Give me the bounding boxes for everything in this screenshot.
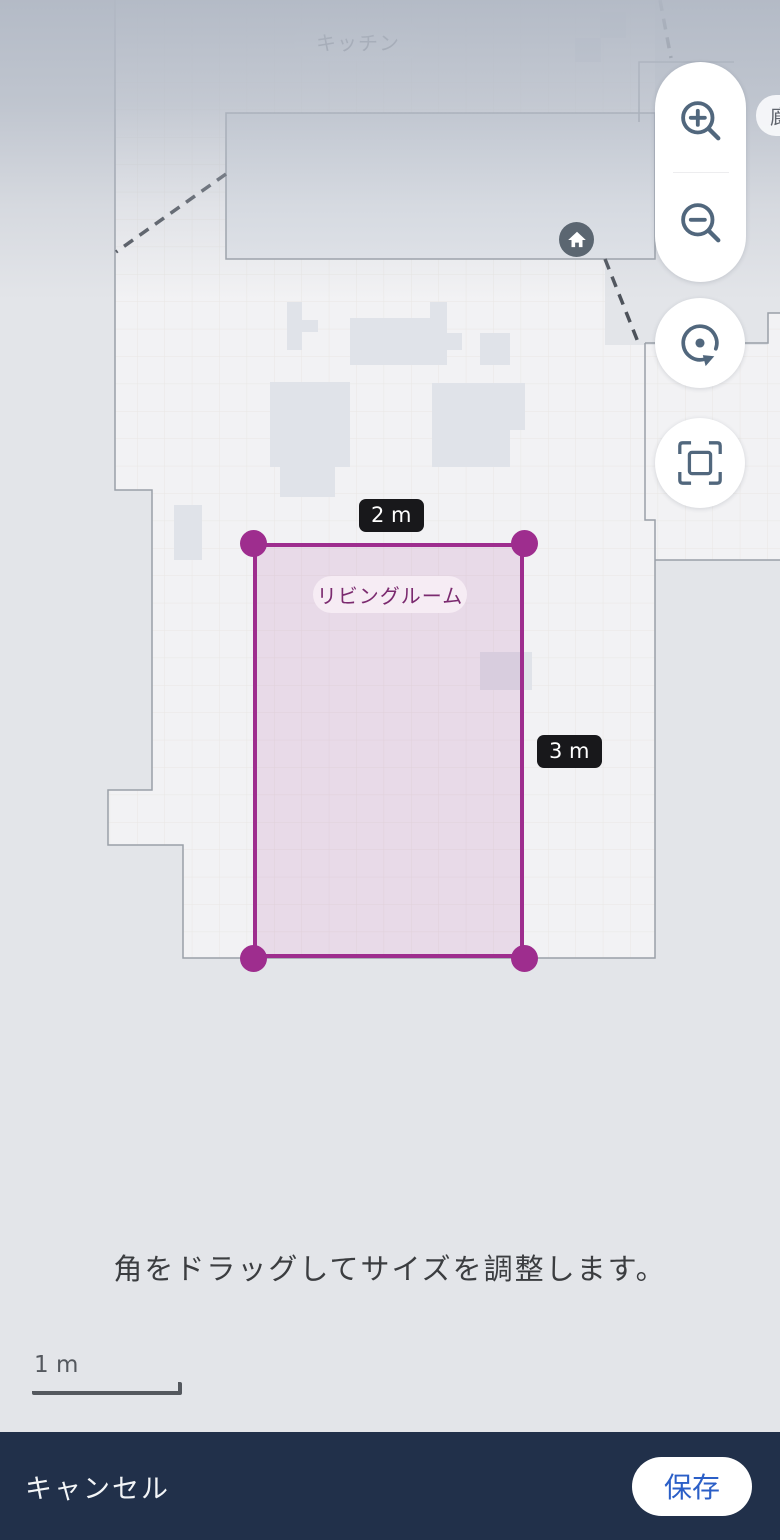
- instruction-text: 角をドラッグしてサイズを調整します。: [0, 1246, 780, 1288]
- map-editor-screen: キッチン 廊下 2 m 3 m リビングルーム: [0, 0, 780, 1540]
- center-map-button[interactable]: [655, 418, 745, 508]
- height-dimension-badge: 3 m: [537, 735, 602, 768]
- scale-indicator: 1 m: [32, 1352, 182, 1395]
- home-icon: [566, 229, 588, 251]
- zoom-in-button[interactable]: [655, 70, 746, 172]
- bottom-action-bar: キャンセル 保存: [0, 1432, 780, 1540]
- save-button[interactable]: 保存: [632, 1457, 752, 1516]
- zoom-out-icon: [678, 200, 724, 246]
- width-dimension-badge: 2 m: [359, 499, 424, 532]
- zoom-controls: [655, 62, 746, 282]
- rotate-map-button[interactable]: [655, 298, 745, 388]
- dock-marker[interactable]: [559, 222, 594, 257]
- kitchen-room-label: キッチン: [294, 22, 422, 61]
- resize-handle-top-left[interactable]: [240, 530, 267, 557]
- scale-label: 1 m: [34, 1352, 182, 1378]
- resize-handle-bottom-right[interactable]: [511, 945, 538, 972]
- zoom-in-icon: [678, 98, 724, 144]
- living-room-label-text: リビングルーム: [317, 580, 463, 609]
- living-room-label: リビングルーム: [313, 576, 467, 613]
- zoom-out-button[interactable]: [655, 173, 746, 275]
- scale-bar: [32, 1382, 182, 1395]
- map-canvas[interactable]: キッチン 廊下 2 m 3 m リビングルーム: [0, 0, 780, 1432]
- kitchen-room-label-text: キッチン: [316, 27, 400, 56]
- cancel-button[interactable]: キャンセル: [25, 1467, 170, 1506]
- resize-handle-bottom-left[interactable]: [240, 945, 267, 972]
- rotate-icon: [674, 317, 726, 369]
- fit-frame-icon: [675, 438, 725, 488]
- resize-handle-top-right[interactable]: [511, 530, 538, 557]
- hallway-room-label-text: 廊下: [770, 101, 780, 130]
